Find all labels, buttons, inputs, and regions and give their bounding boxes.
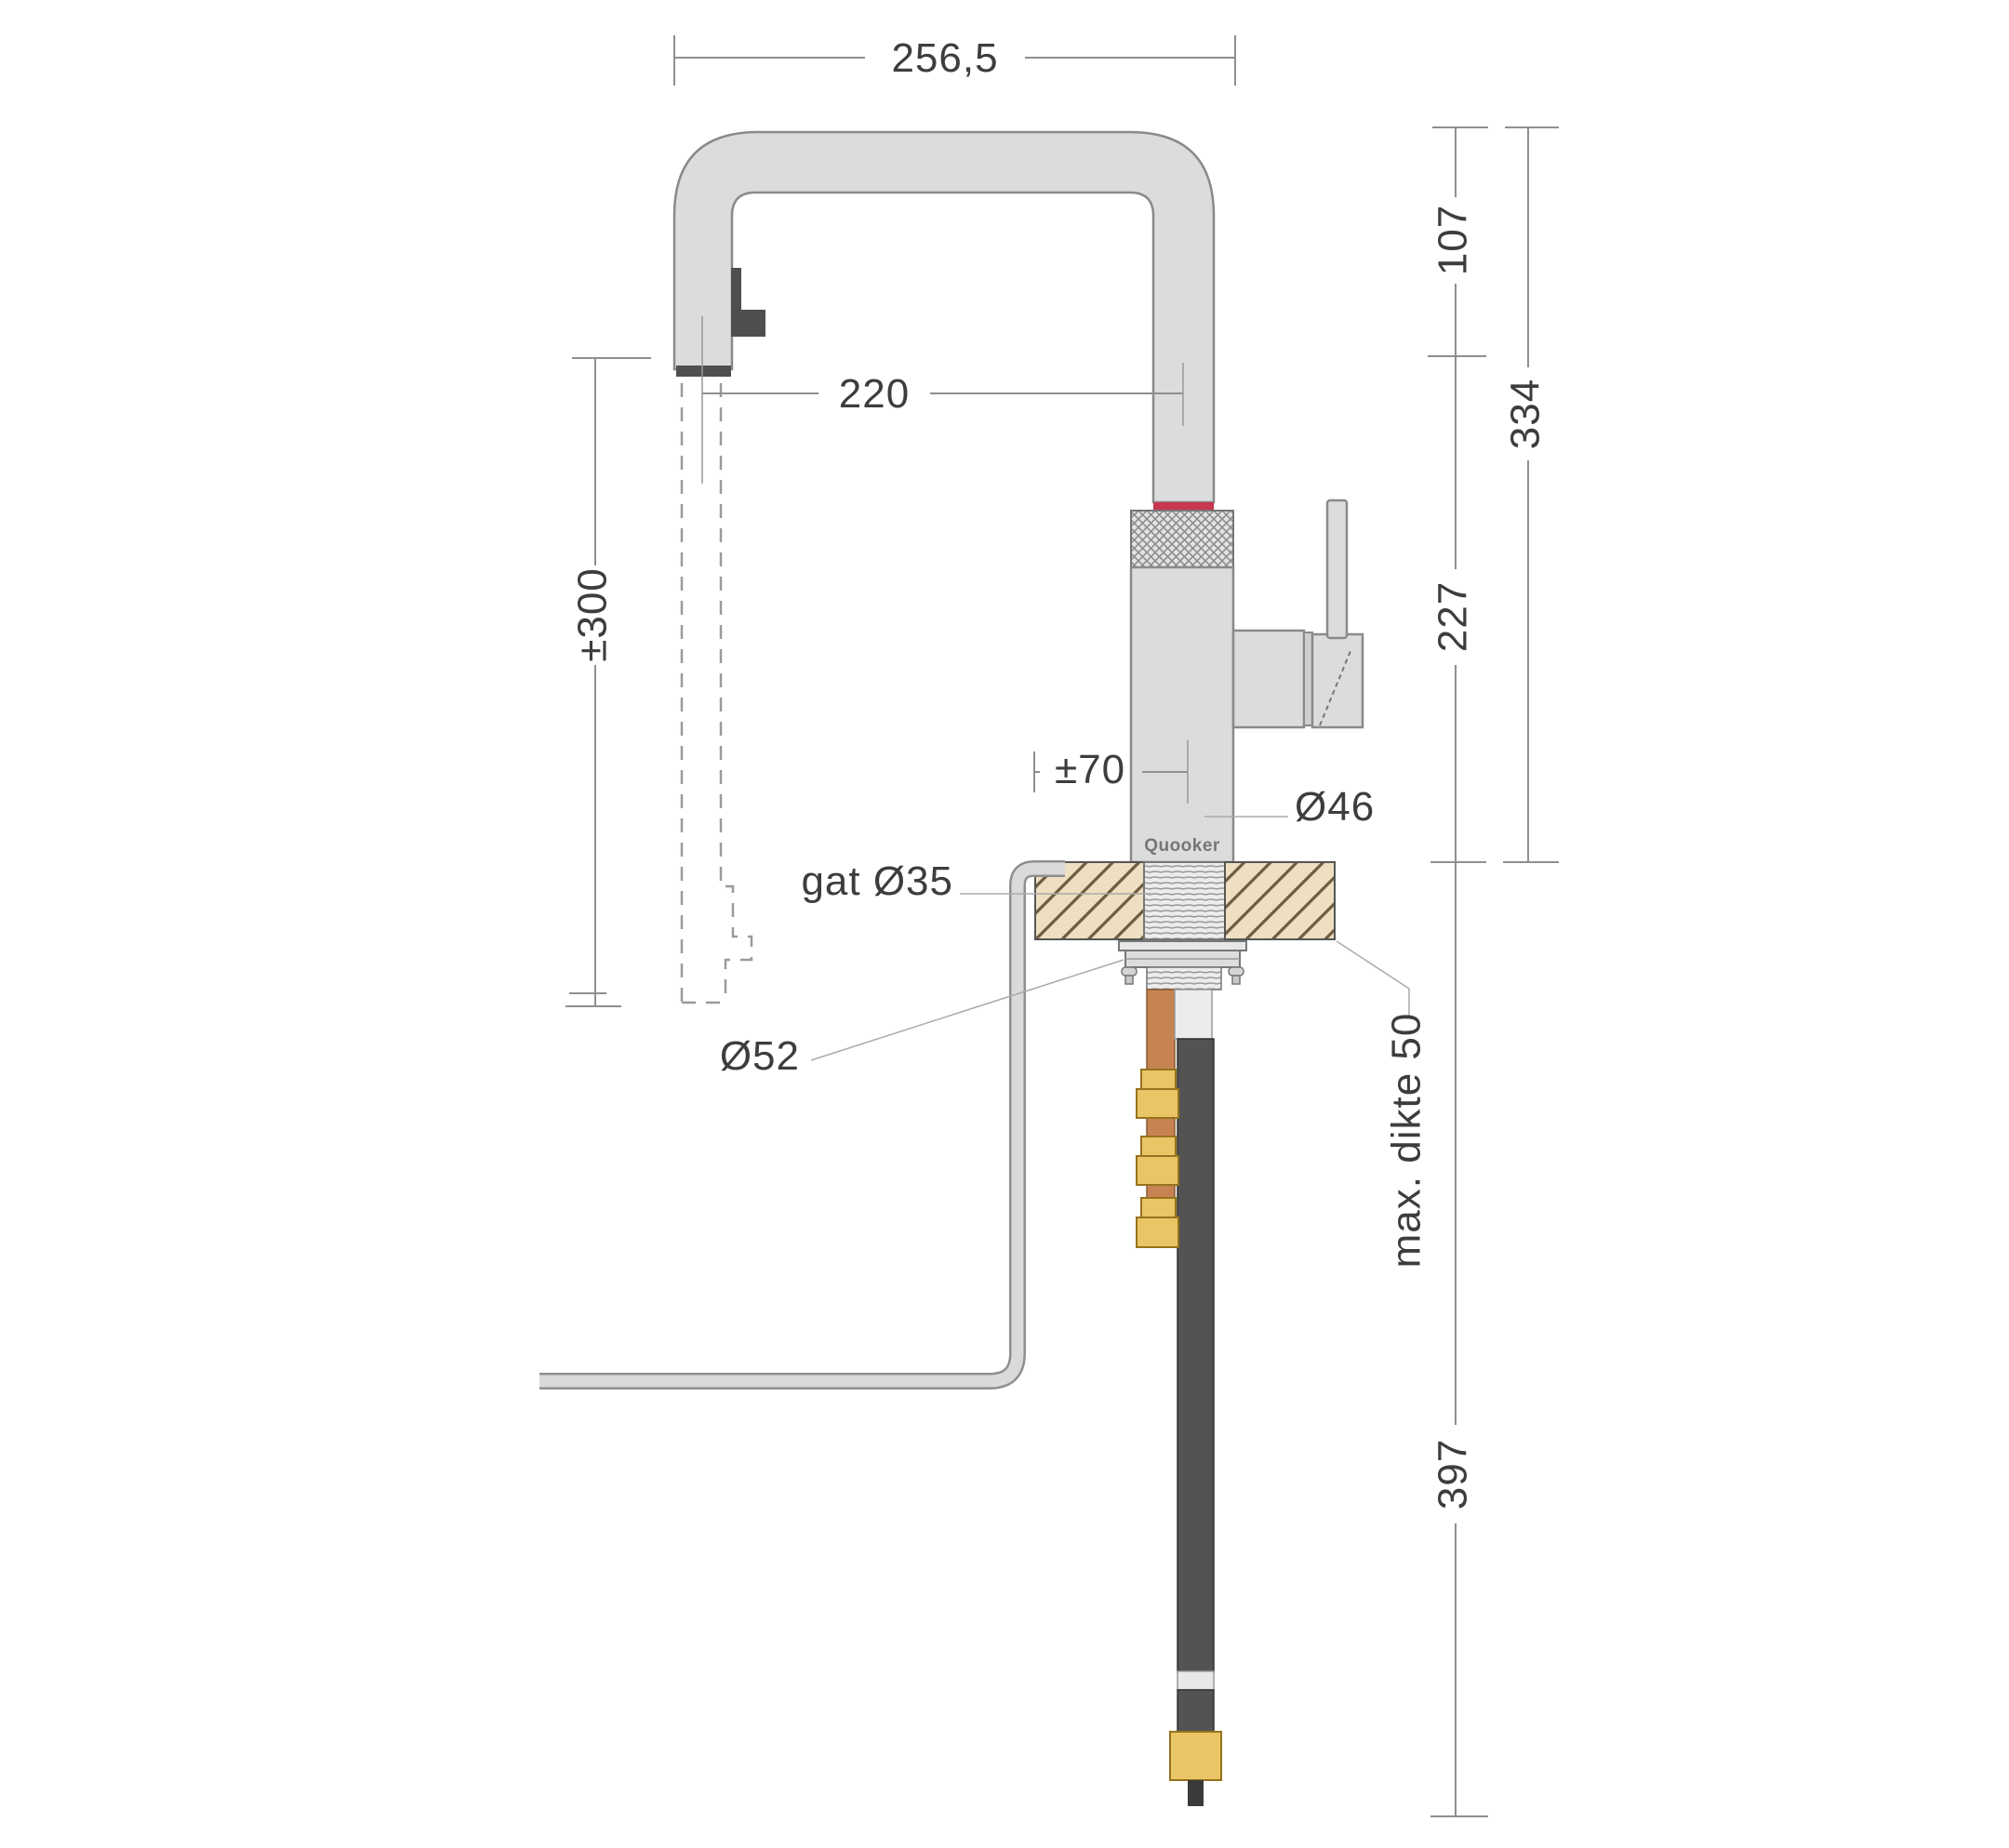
handle-ring — [1304, 632, 1312, 725]
faucet-dimension-diagram: Quooker — [0, 0, 2009, 1848]
counter-slab-right — [1225, 862, 1335, 939]
brass-nut-1 — [1141, 1070, 1176, 1089]
countertop — [1035, 862, 1335, 939]
flex-hose — [539, 869, 1065, 1381]
dim-body-diameter-label: Ø46 — [1295, 784, 1375, 830]
handle-base — [1312, 634, 1363, 727]
handle-lever — [1327, 500, 1347, 638]
dim-center-offset-label: ±70 — [1055, 747, 1125, 792]
dim-hole-diameter-label: gat Ø35 — [801, 858, 953, 904]
black-hose — [1177, 1039, 1214, 1671]
counter-hole-thread — [1144, 862, 1225, 939]
flange-plate-top — [1119, 941, 1246, 951]
sprayer-clip-icon — [731, 268, 741, 337]
aerator-band — [676, 366, 731, 377]
dim-flange-diameter: Ø52 — [720, 960, 1124, 1079]
brass-block-2 — [1137, 1156, 1178, 1185]
sprayer-stream-dashed-outline — [682, 383, 752, 1003]
dim-spout-horizontal: 220 — [702, 316, 1183, 484]
handle-tee — [1233, 631, 1304, 727]
dim-body-height-label: 227 — [1430, 581, 1476, 652]
clamp-screw-left-stem — [1125, 976, 1133, 984]
dim-spout-horizontal-label: 220 — [839, 371, 910, 417]
brass-nut-2 — [1141, 1137, 1176, 1156]
dim-below-counter-depth-label: 397 — [1430, 1439, 1476, 1509]
clamp-screw-left — [1122, 967, 1137, 976]
end-fitting-brass — [1170, 1732, 1221, 1780]
clamp-screw-right-stem — [1232, 976, 1240, 984]
flex-hose-outline — [539, 869, 1065, 1381]
brass-nut-3 — [1141, 1198, 1176, 1217]
clamp-screw-right — [1229, 967, 1244, 976]
dim-height-above-counter: 334 — [1503, 127, 1560, 862]
dim-height-above-counter-label: 334 — [1503, 379, 1549, 449]
brass-block-3 — [1137, 1217, 1178, 1247]
dim-spout-reach: 256,5 — [674, 35, 1235, 86]
dim-max-counter-thickness-label: max. dikte 50 — [1384, 1013, 1430, 1269]
faucet-body — [1131, 567, 1233, 862]
white-hose-section — [1175, 990, 1212, 1039]
dim-spout-rise-label: 107 — [1430, 205, 1476, 275]
under-counter-assembly — [539, 869, 1246, 1806]
technical-drawing-page: Quooker — [0, 0, 2009, 1848]
dim-spout-reach-label: 256,5 — [891, 35, 998, 81]
knurled-ring — [1131, 511, 1233, 567]
dim-right-inner-line: 107 227 397 — [1428, 127, 1488, 1816]
hot-indicator-ring — [1153, 502, 1214, 511]
black-hose-white-ring — [1177, 1671, 1214, 1690]
sprayer-clip-button — [741, 310, 765, 337]
thread-below-flange — [1147, 967, 1221, 990]
brass-block-1 — [1137, 1089, 1178, 1118]
dim-stream-length: ±300 — [565, 358, 651, 1006]
end-fitting-tip — [1188, 1780, 1204, 1806]
dim-stream-length-label: ±300 — [570, 567, 616, 662]
brand-logo: Quooker — [1144, 836, 1220, 856]
dim-flange-diameter-label: Ø52 — [720, 1033, 800, 1079]
dim-max-counter-thickness: max. dikte 50 — [1337, 941, 1430, 1268]
black-hose-lower — [1177, 1690, 1214, 1732]
